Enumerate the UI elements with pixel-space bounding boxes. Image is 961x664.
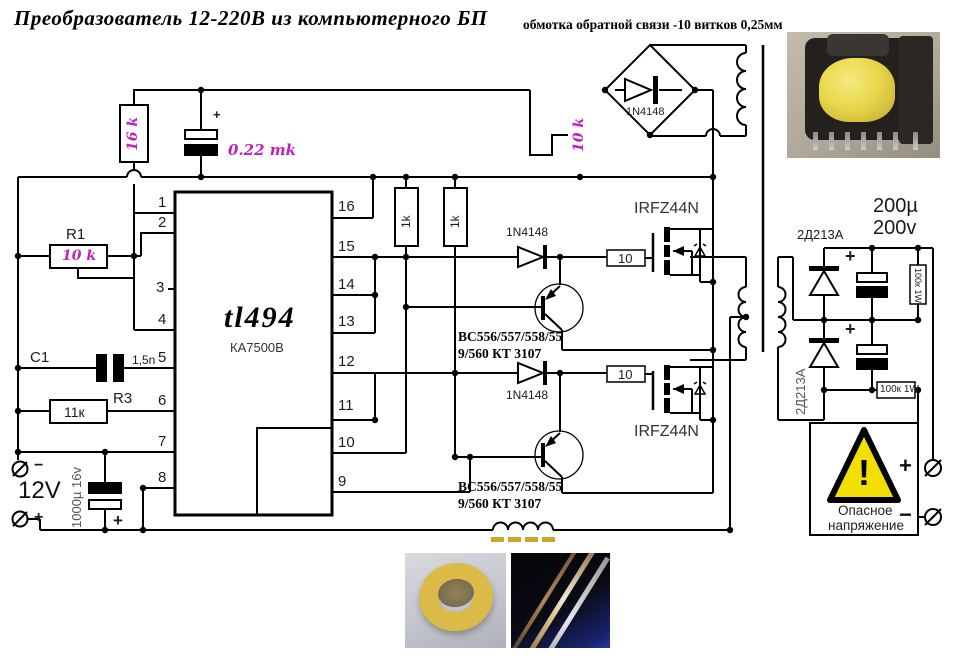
transformer-photo-tape	[819, 58, 895, 122]
page-title: Преобразователь 12-220В из компьютерного…	[14, 8, 488, 29]
c1-name-label: C1	[30, 350, 49, 365]
cap-022-plus-sign: +	[213, 108, 221, 121]
feedback-note: обмотка обратной связи -10 витков 0,25мм	[523, 18, 783, 32]
capacitor-022-symbol	[185, 90, 217, 177]
pin-label-10: 10	[338, 435, 355, 450]
pin-label-1: 1	[158, 195, 166, 210]
pin-label-3: 3	[156, 280, 164, 295]
pin-label-2: 2	[158, 215, 166, 230]
bjt1-label-line2: 9/560 КТ 3107	[458, 347, 541, 361]
bjt2-label-line1: BC556/557/558/55	[458, 480, 562, 494]
r1-value-label: 10 k	[62, 249, 96, 263]
pin-label-9: 9	[338, 474, 346, 489]
ic-alt-label: КА7500В	[230, 341, 284, 354]
resistor-1k-b-label: 1k	[449, 215, 461, 228]
pin-label-12: 12	[338, 354, 355, 369]
output-minus-sign: −	[899, 504, 912, 526]
resistor-gate1-label: 10	[618, 252, 632, 265]
vin-plus-sign: +	[34, 510, 43, 526]
transformer-photo	[787, 32, 940, 158]
transformer-photo-pin	[877, 132, 882, 150]
r3-value-label: 11к	[64, 405, 85, 419]
diode-out1-label: 2Д213А	[797, 228, 843, 241]
output-terminal-minus-icon	[925, 509, 941, 525]
cap-out-label-1: 200µ	[873, 196, 918, 216]
output-choke-symbol	[493, 523, 553, 530]
pin-label-4: 4	[158, 312, 166, 327]
bridge-rectifier-symbol	[605, 45, 695, 135]
pin-label-8: 8	[158, 470, 166, 485]
cap-1000u-label: 1000µ 16v	[70, 467, 83, 528]
diode-gate1-label: 1N4148	[506, 226, 548, 238]
cap-out2-plus-sign: +	[845, 320, 856, 338]
mosfet1-label: IRFZ44N	[634, 201, 699, 217]
pin-label-6: 6	[158, 393, 166, 408]
pin-label-7: 7	[158, 434, 166, 449]
output-plus-sign: +	[899, 455, 912, 477]
transformer-photo-pin	[913, 132, 918, 150]
warning-exclamation: !	[858, 455, 870, 491]
toroid-core-photo	[405, 553, 506, 648]
vin-label: 12V	[18, 479, 61, 503]
mosfet-irfz44n-2-symbol	[653, 365, 713, 420]
capacitor-200u-1-symbol	[857, 248, 887, 320]
transformer-photo-pin	[893, 132, 898, 150]
vin-minus-sign: −	[34, 458, 43, 474]
diode-2d213a-1-symbol	[809, 248, 839, 320]
resistor-1k-a-label: 1k	[400, 215, 412, 228]
choke-gold-dashes	[491, 537, 555, 542]
resistor-gate2-label: 10	[618, 368, 632, 381]
output-terminal-plus-icon	[925, 460, 941, 476]
cap-out1-plus-sign: +	[845, 247, 856, 265]
resistor-r1-symbol	[18, 233, 175, 278]
r3-name-label: R3	[113, 391, 132, 406]
r1-name-label: R1	[66, 227, 85, 242]
resistor-100k1-label: 100к 1W	[913, 268, 922, 303]
diode-out2-label: 2Д213А	[794, 369, 807, 415]
schematic-page: Преобразователь 12-220В из компьютерного…	[0, 0, 961, 664]
bjt1-label-line1: BC556/557/558/55	[458, 330, 562, 344]
warning-text-line1: Опасное	[838, 504, 893, 518]
pin-label-13: 13	[338, 314, 355, 329]
warning-text-line2: напряжение	[828, 519, 904, 533]
pin-label-15: 15	[338, 239, 355, 254]
pin-label-14: 14	[338, 277, 355, 292]
cap-out-label-2: 200v	[873, 218, 916, 238]
mosfet2-label: IRFZ44N	[634, 424, 699, 440]
input-terminal-plus-icon	[13, 512, 28, 527]
resistor-16k-label: 16 k	[126, 117, 140, 151]
ic-name-label: tl494	[224, 303, 296, 333]
mosfet-irfz44n-1-symbol	[653, 227, 713, 282]
pin-label-16: 16	[338, 199, 355, 214]
transformer-photo-slab	[899, 36, 933, 144]
bridge-diode-label: 1N4148	[626, 107, 665, 118]
pin-label-5: 5	[158, 350, 166, 365]
diode-gate2-label: 1N4148	[506, 389, 548, 401]
pin-label-11: 11	[338, 398, 354, 413]
transformer-photo-clamp	[827, 34, 889, 56]
transformer-photo-pin	[829, 132, 834, 150]
transformer-photo-pin	[845, 132, 850, 150]
wire-strand	[511, 553, 585, 648]
transformer-photo-pin	[813, 132, 818, 150]
winding-wire-photo	[511, 553, 610, 648]
resistor-100k2-label: 100к 1W	[880, 385, 919, 395]
diode-2d213a-2-symbol	[809, 320, 839, 390]
bjt2-label-line2: 9/560 КТ 3107	[458, 497, 541, 511]
transformer-photo-pin	[861, 132, 866, 150]
input-terminal-minus-icon	[13, 462, 28, 477]
c1-value-label: 1,5n	[132, 354, 155, 366]
capacitor-200u-2-symbol	[857, 320, 887, 390]
cap-1000u-plus-sign: +	[113, 512, 123, 529]
cap-022-label: 0.22 mk	[228, 143, 296, 158]
resistor-10k-fb-label: 10 k	[572, 118, 586, 152]
resistor-r3-symbol	[18, 400, 175, 423]
